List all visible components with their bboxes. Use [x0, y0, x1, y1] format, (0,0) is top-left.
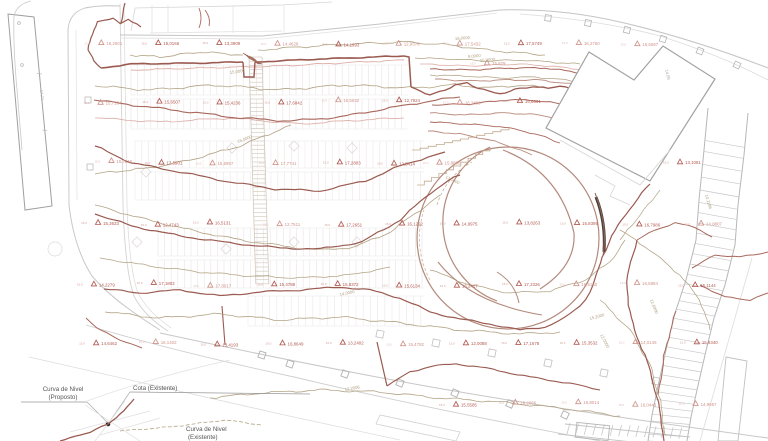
svg-text:15,0: 15,0	[321, 98, 327, 102]
svg-text:15,0: 15,0	[622, 223, 628, 227]
svg-text:15,0: 15,0	[139, 340, 145, 344]
svg-text:15,4788: 15,4788	[279, 282, 295, 287]
svg-text:14,9657: 14,9657	[701, 402, 717, 407]
svg-text:15,0: 15,0	[559, 282, 565, 286]
svg-text:15,0: 15,0	[195, 162, 201, 166]
svg-text:15,0: 15,0	[323, 161, 329, 165]
svg-text:17,6842: 17,6842	[286, 100, 302, 105]
svg-text:15,5585: 15,5585	[461, 403, 477, 408]
svg-text:17,7741: 17,7741	[281, 161, 297, 166]
svg-text:15,8885: 15,8885	[445, 161, 461, 166]
svg-text:12,4743: 12,4743	[163, 223, 179, 228]
svg-text:14,9975: 14,9975	[462, 221, 478, 226]
svg-text:(Existente): (Existente)	[188, 434, 218, 441]
svg-text:16,2601: 16,2601	[106, 41, 122, 46]
svg-text:15,0: 15,0	[84, 101, 90, 105]
svg-text:14,71: 14,71	[39, 90, 45, 102]
svg-text:15,0: 15,0	[560, 341, 566, 345]
svg-text:17,1803: 17,1803	[159, 281, 175, 286]
svg-text:15,0: 15,0	[498, 401, 504, 405]
svg-text:15,6134: 15,6134	[404, 283, 420, 288]
svg-text:15,0: 15,0	[684, 222, 690, 226]
svg-text:17,2803: 17,2803	[345, 160, 361, 165]
svg-text:15,0: 15,0	[259, 161, 265, 165]
svg-text:15,0: 15,0	[443, 101, 449, 105]
svg-text:15,0: 15,0	[560, 221, 566, 225]
svg-text:15,0: 15,0	[503, 99, 509, 103]
svg-text:15,1144: 15,1144	[700, 283, 716, 288]
svg-text:16,5150: 16,5150	[581, 282, 597, 287]
svg-text:16,2427: 16,2427	[462, 284, 478, 289]
svg-text:15,8395: 15,8395	[582, 221, 598, 226]
svg-text:15,0: 15,0	[321, 43, 327, 47]
svg-text:15,0: 15,0	[618, 403, 624, 407]
svg-text:15,3633: 15,3633	[103, 221, 119, 226]
svg-text:15,0: 15,0	[502, 282, 508, 286]
svg-text:15,0: 15,0	[144, 161, 150, 165]
svg-text:15,0: 15,0	[382, 42, 388, 46]
svg-text:15,0: 15,0	[137, 281, 143, 285]
svg-text:17,2326: 17,2326	[524, 282, 540, 287]
svg-text:15,5957: 15,5957	[217, 161, 233, 166]
svg-text:16,7986: 16,7986	[644, 222, 660, 227]
svg-text:12,7511: 12,7511	[285, 222, 301, 227]
svg-text:15,0: 15,0	[679, 402, 685, 406]
svg-text:15,0: 15,0	[423, 161, 429, 165]
svg-text:15,0: 15,0	[141, 223, 147, 227]
svg-text:15,0: 15,0	[501, 341, 507, 345]
svg-text:15,2006: 15,2006	[589, 312, 606, 321]
svg-text:15,0: 15,0	[678, 283, 684, 287]
svg-text:16,2056: 16,2056	[520, 401, 536, 406]
svg-text:12,9378: 12,9378	[404, 42, 420, 47]
svg-text:14,1186: 14,1186	[704, 194, 713, 210]
svg-text:15,0: 15,0	[94, 159, 100, 163]
svg-text:15,0: 15,0	[382, 98, 388, 102]
svg-text:15,0: 15,0	[562, 41, 568, 45]
svg-text:15,0: 15,0	[619, 340, 625, 344]
svg-text:13,1081: 13,1081	[685, 160, 701, 165]
svg-text:15,8372: 15,8372	[343, 282, 359, 287]
svg-text:15,0: 15,0	[141, 41, 147, 45]
svg-text:15,7104: 15,7104	[106, 101, 122, 106]
svg-text:15,0: 15,0	[382, 284, 388, 288]
svg-text:12,8414: 12,8414	[399, 161, 415, 166]
svg-text:16,5131: 16,5131	[215, 220, 231, 225]
svg-text:15,0: 15,0	[663, 161, 669, 165]
svg-text:15,0: 15,0	[257, 283, 263, 287]
svg-text:Curva de Nivel: Curva de Nivel	[43, 386, 84, 393]
svg-text:14,6462: 14,6462	[101, 341, 117, 346]
svg-text:14,0146: 14,0146	[641, 340, 657, 345]
svg-text:15,0: 15,0	[264, 101, 270, 105]
svg-text:16,8649: 16,8649	[288, 341, 304, 346]
svg-text:16,2890: 16,2890	[465, 100, 481, 105]
svg-text:16,1222: 16,1222	[407, 221, 423, 226]
svg-text:17,2651: 17,2651	[346, 223, 362, 228]
svg-text:17,5749: 17,5749	[526, 41, 542, 46]
svg-text:15,0: 15,0	[377, 162, 383, 166]
svg-text:16,5597: 16,5597	[642, 42, 658, 47]
svg-text:15,0: 15,0	[202, 41, 208, 45]
svg-text:16,2760: 16,2760	[584, 41, 600, 46]
svg-text:13,2402: 13,2402	[348, 341, 364, 346]
svg-text:15,0: 15,0	[504, 41, 510, 45]
svg-text:15,0: 15,0	[440, 222, 446, 226]
svg-text:15,0: 15,0	[385, 222, 391, 226]
svg-text:16,6661: 16,6661	[525, 99, 541, 104]
svg-text:15,4236: 15,4236	[225, 100, 241, 105]
svg-text:Cota (Existente): Cota (Existente)	[133, 385, 177, 392]
svg-text:15,0: 15,0	[386, 342, 392, 346]
svg-text:15,829: 15,829	[492, 61, 506, 66]
svg-text:15,0: 15,0	[193, 221, 199, 225]
svg-text:13,5901: 13,5901	[166, 161, 182, 166]
svg-text:17,1678: 17,1678	[523, 341, 539, 346]
svg-text:14,2279: 14,2279	[99, 282, 115, 287]
svg-text:15,0: 15,0	[200, 343, 206, 347]
svg-text:15,0: 15,0	[443, 42, 449, 46]
svg-text:16,5894: 16,5894	[642, 281, 658, 286]
svg-text:15,0: 15,0	[680, 340, 686, 344]
svg-text:15,0: 15,0	[81, 221, 87, 225]
svg-text:15,0: 15,0	[449, 342, 455, 346]
svg-text:15,0: 15,0	[260, 42, 266, 46]
svg-text:15,0: 15,0	[266, 342, 272, 346]
svg-text:15,6507: 15,6507	[164, 100, 180, 105]
svg-text:15,0: 15,0	[620, 281, 626, 285]
svg-text:17,5432: 17,5432	[465, 41, 481, 46]
svg-text:15,0: 15,0	[321, 282, 327, 286]
svg-text:15,8014: 15,8014	[583, 400, 599, 405]
svg-text:14,1993: 14,1993	[343, 42, 359, 47]
svg-text:15,4782: 15,4782	[408, 342, 424, 347]
svg-text:15,3532: 15,3532	[582, 341, 598, 346]
svg-text:15,0: 15,0	[79, 342, 85, 346]
svg-text:(Proposto): (Proposto)	[49, 394, 78, 401]
svg-text:15,0166: 15,0166	[163, 41, 179, 46]
svg-text:12,0000: 12,0000	[599, 333, 611, 349]
svg-text:Curva de Nivel: Curva de Nivel	[186, 426, 227, 433]
svg-text:15,0: 15,0	[263, 222, 269, 226]
svg-text:15,0: 15,0	[470, 62, 476, 66]
svg-text:15,7215: 15,7215	[116, 159, 132, 164]
svg-text:16,0443: 16,0443	[640, 403, 656, 408]
svg-text:15,0: 15,0	[77, 283, 83, 287]
svg-text:12,7924: 12,7924	[404, 98, 420, 103]
svg-text:17,8017: 17,8017	[215, 284, 231, 289]
svg-text:15,9340: 15,9340	[702, 340, 718, 345]
svg-text:13,4193: 13,4193	[222, 342, 238, 347]
svg-text:15,0: 15,0	[203, 101, 209, 105]
svg-text:15,0: 15,0	[324, 223, 330, 227]
svg-text:14,8807: 14,8807	[706, 222, 722, 227]
svg-text:12,6000: 12,6000	[649, 299, 660, 316]
svg-text:16,1402: 16,1402	[161, 340, 177, 345]
svg-text:15,0: 15,0	[440, 284, 446, 288]
svg-text:15,0: 15,0	[620, 42, 626, 46]
svg-text:15,0: 15,0	[142, 100, 148, 104]
svg-text:15,0: 15,0	[326, 341, 332, 345]
svg-text:15,0: 15,0	[84, 41, 90, 45]
svg-text:13,8263: 13,8263	[524, 220, 540, 225]
svg-text:15,0: 15,0	[502, 221, 508, 225]
svg-text:13,3909: 13,3909	[224, 41, 240, 46]
svg-text:12,0088: 12,0088	[471, 341, 487, 346]
svg-text:16,5632: 16,5632	[343, 98, 359, 103]
svg-text:16,0000: 16,0000	[455, 35, 471, 41]
svg-text:14,4628: 14,4628	[282, 42, 298, 47]
svg-text:15,0: 15,0	[193, 284, 199, 288]
svg-text:15,0: 15,0	[561, 400, 567, 404]
svg-text:15,0: 15,0	[439, 403, 445, 407]
